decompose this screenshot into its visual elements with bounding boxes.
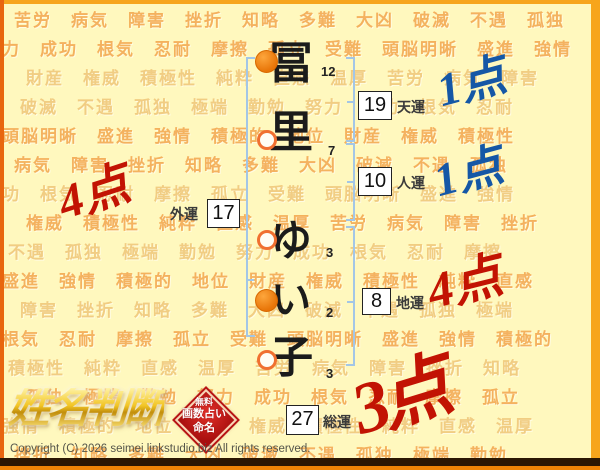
- soun-value-box: 27: [286, 405, 319, 435]
- tenun-label: 天運: [397, 97, 425, 117]
- gaiun-label: 外運: [170, 204, 198, 224]
- seal-line: 無料: [175, 397, 233, 408]
- background-word-row: 不遇 孤独 極端 勤勉 努力 成功 根気 忍耐 摩擦: [8, 238, 502, 263]
- frame-left-border: [0, 0, 4, 470]
- stroke-count: 7: [328, 143, 335, 158]
- tenun-bracket: [346, 57, 355, 142]
- seimei-handan-result-chart: 苦労 病気 障害 挫折 知略 多難 大凶 破滅 不遇 孤独 力 成功 根気 忍耐…: [0, 0, 600, 470]
- soun-label: 総運: [323, 412, 351, 432]
- marker-hollow-circle-icon: [257, 130, 277, 150]
- footer-orange-bar: [0, 466, 600, 470]
- jinun-label: 人運: [397, 173, 425, 193]
- seal-text: 無料 画数占い 命名: [175, 397, 233, 436]
- marker-filled-circle-icon: [255, 50, 278, 73]
- frame-top-border: [0, 0, 600, 4]
- red-seal-stamp-icon: 無料 画数占い 命名: [175, 389, 233, 447]
- jinun-bracket: [346, 143, 355, 221]
- bracket-notch: [347, 301, 353, 303]
- marker-filled-circle-icon: [255, 289, 278, 312]
- seal-line: 命名: [175, 422, 233, 436]
- stroke-count: 3: [326, 366, 333, 381]
- bracket-notch: [347, 101, 353, 103]
- site-logo: 姓名判断: [7, 388, 166, 430]
- gaiun-value-box: 17: [207, 199, 240, 228]
- seal-line: 画数占い: [175, 408, 233, 422]
- stroke-count: 3: [326, 245, 333, 260]
- chiun-label: 地運: [396, 293, 424, 313]
- stroke-count: 2: [326, 305, 333, 320]
- frame-right-border: [591, 0, 600, 470]
- bracket-notch: [248, 279, 254, 281]
- jinun-value-box: 10: [358, 167, 392, 196]
- bracket-notch: [347, 181, 353, 183]
- gaiun-bracket: [246, 57, 255, 337]
- marker-hollow-circle-icon: [257, 350, 277, 370]
- background-word-row: 苦労 病気 障害 挫折 知略 多難 大凶 破滅 不遇 孤独: [14, 6, 565, 31]
- footer-dark-bar: [0, 458, 600, 466]
- chiun-bracket: [346, 226, 355, 366]
- chiun-value-box: 8: [362, 288, 391, 315]
- copyright-text: Copyright (C) 2026 seimei.linkstudio.biz…: [10, 443, 310, 455]
- stroke-count: 12: [321, 64, 335, 79]
- tenun-value-box: 19: [358, 91, 392, 120]
- marker-hollow-circle-icon: [257, 230, 277, 250]
